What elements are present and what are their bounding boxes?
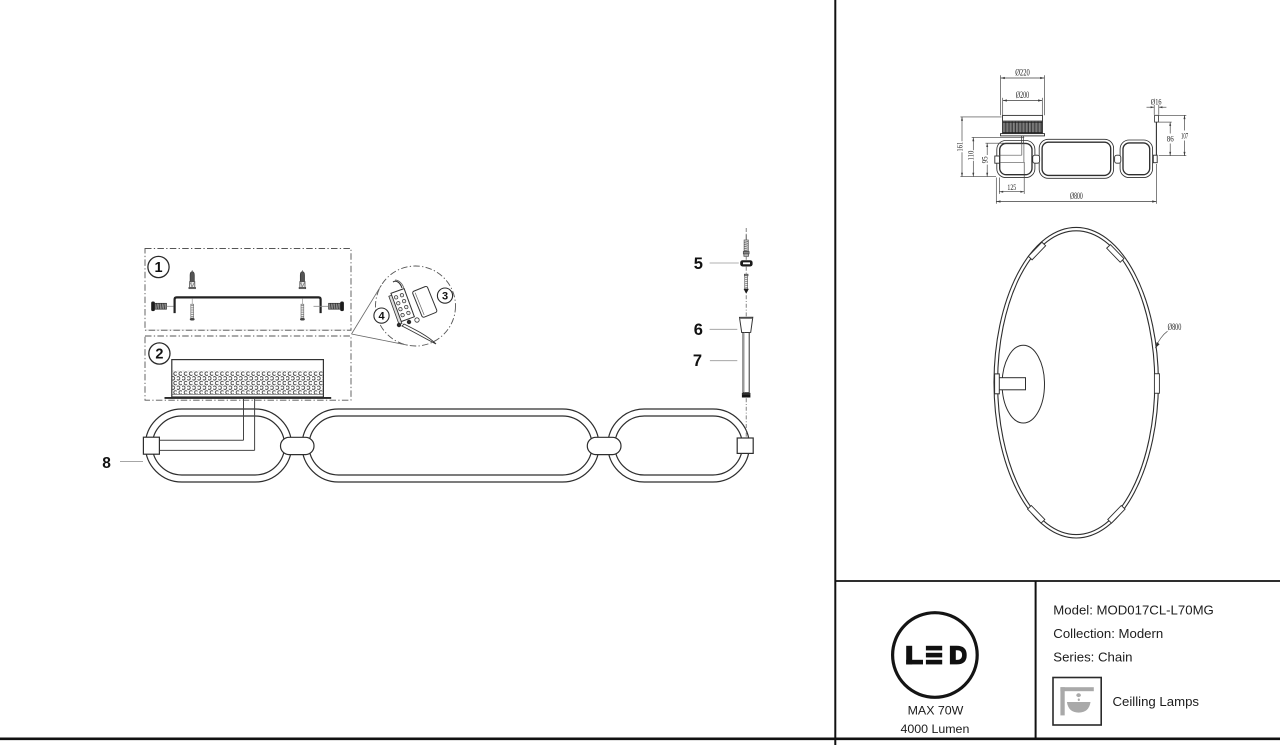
svg-text:125: 125 <box>1007 182 1016 192</box>
svg-text:Ceilling Lamps: Ceilling Lamps <box>1113 694 1200 709</box>
svg-text:Ø200: Ø200 <box>1016 90 1030 100</box>
svg-text:161: 161 <box>954 142 964 152</box>
svg-text:Ø16: Ø16 <box>1151 97 1162 107</box>
svg-text:Model: MOD017CL-L70MG: Model: MOD017CL-L70MG <box>1053 603 1214 618</box>
svg-text:Collection: Modern: Collection: Modern <box>1053 626 1163 641</box>
svg-text:86: 86 <box>1167 134 1174 144</box>
svg-text:110: 110 <box>966 150 976 160</box>
svg-text:95: 95 <box>980 156 990 163</box>
svg-text:Series: Chain: Series: Chain <box>1053 650 1132 665</box>
svg-text:Ø220: Ø220 <box>1015 67 1030 77</box>
svg-text:8: 8 <box>102 455 111 472</box>
svg-text:107: 107 <box>1181 131 1189 141</box>
svg-text:4: 4 <box>378 311 385 323</box>
svg-text:1: 1 <box>154 260 162 276</box>
svg-text:3: 3 <box>442 291 448 303</box>
svg-text:2: 2 <box>155 347 163 363</box>
svg-text:Ø800: Ø800 <box>1070 191 1083 201</box>
svg-text:5: 5 <box>694 255 703 273</box>
svg-text:4000 Lumen: 4000 Lumen <box>900 722 969 736</box>
svg-text:6: 6 <box>694 321 703 339</box>
svg-text:Ø800: Ø800 <box>1168 322 1182 333</box>
svg-text:7: 7 <box>693 352 702 370</box>
svg-text:MAX 70W: MAX 70W <box>908 704 964 718</box>
